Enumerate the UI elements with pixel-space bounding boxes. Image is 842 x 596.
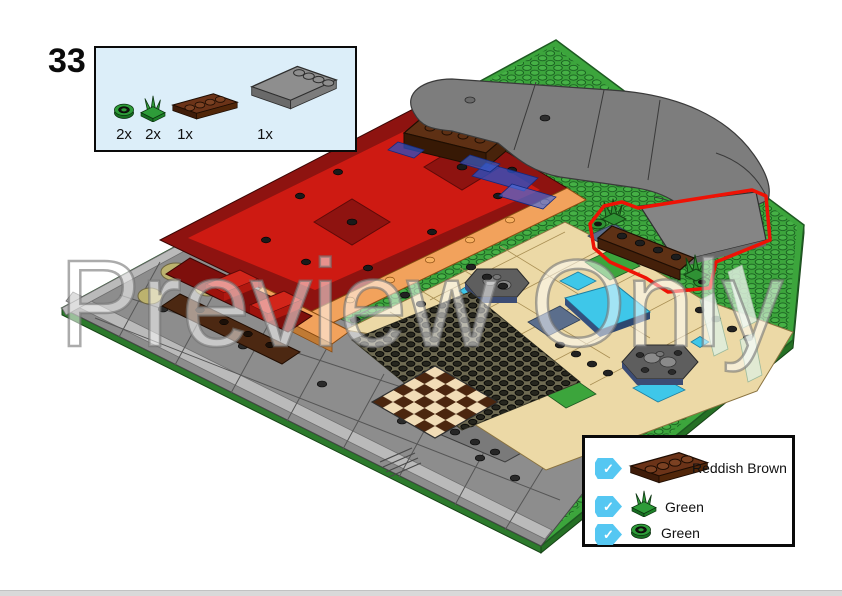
tile-4x4-edge-studs-icon: [244, 58, 344, 124]
legend-checkbox[interactable]: ✓: [595, 524, 622, 545]
legend-checkbox[interactable]: ✓: [595, 458, 622, 479]
legend-checkbox[interactable]: ✓: [595, 496, 622, 517]
legend-color-label: Reddish Brown: [692, 460, 787, 476]
instruction-page: Preview Only 33 2x 2x 1x 1x ✓ Reddish Br…: [0, 0, 842, 596]
legend-color-label: Green: [661, 525, 700, 541]
part-quantity: 2x: [136, 126, 170, 143]
part-quantity: 1x: [168, 126, 202, 143]
step-number: 33: [48, 42, 86, 81]
round-plate-1x1-green-icon: [112, 102, 136, 120]
watermark-text: Preview Only: [59, 236, 784, 373]
plant-flower-green-icon: [629, 489, 659, 517]
parts-callout-box: 2x 2x 1x 1x: [94, 46, 357, 152]
page-bottom-divider: [0, 590, 842, 596]
part-quantity: 1x: [248, 126, 282, 143]
round-plate-1x1-green-icon: [629, 522, 653, 540]
legend-color-label: Green: [665, 499, 704, 515]
plate-1x4-reddish-brown-icon: [170, 88, 240, 122]
plant-flower-green-icon: [138, 94, 168, 122]
color-legend-box: ✓ Reddish Brown ✓ Green ✓ Green: [582, 435, 795, 547]
